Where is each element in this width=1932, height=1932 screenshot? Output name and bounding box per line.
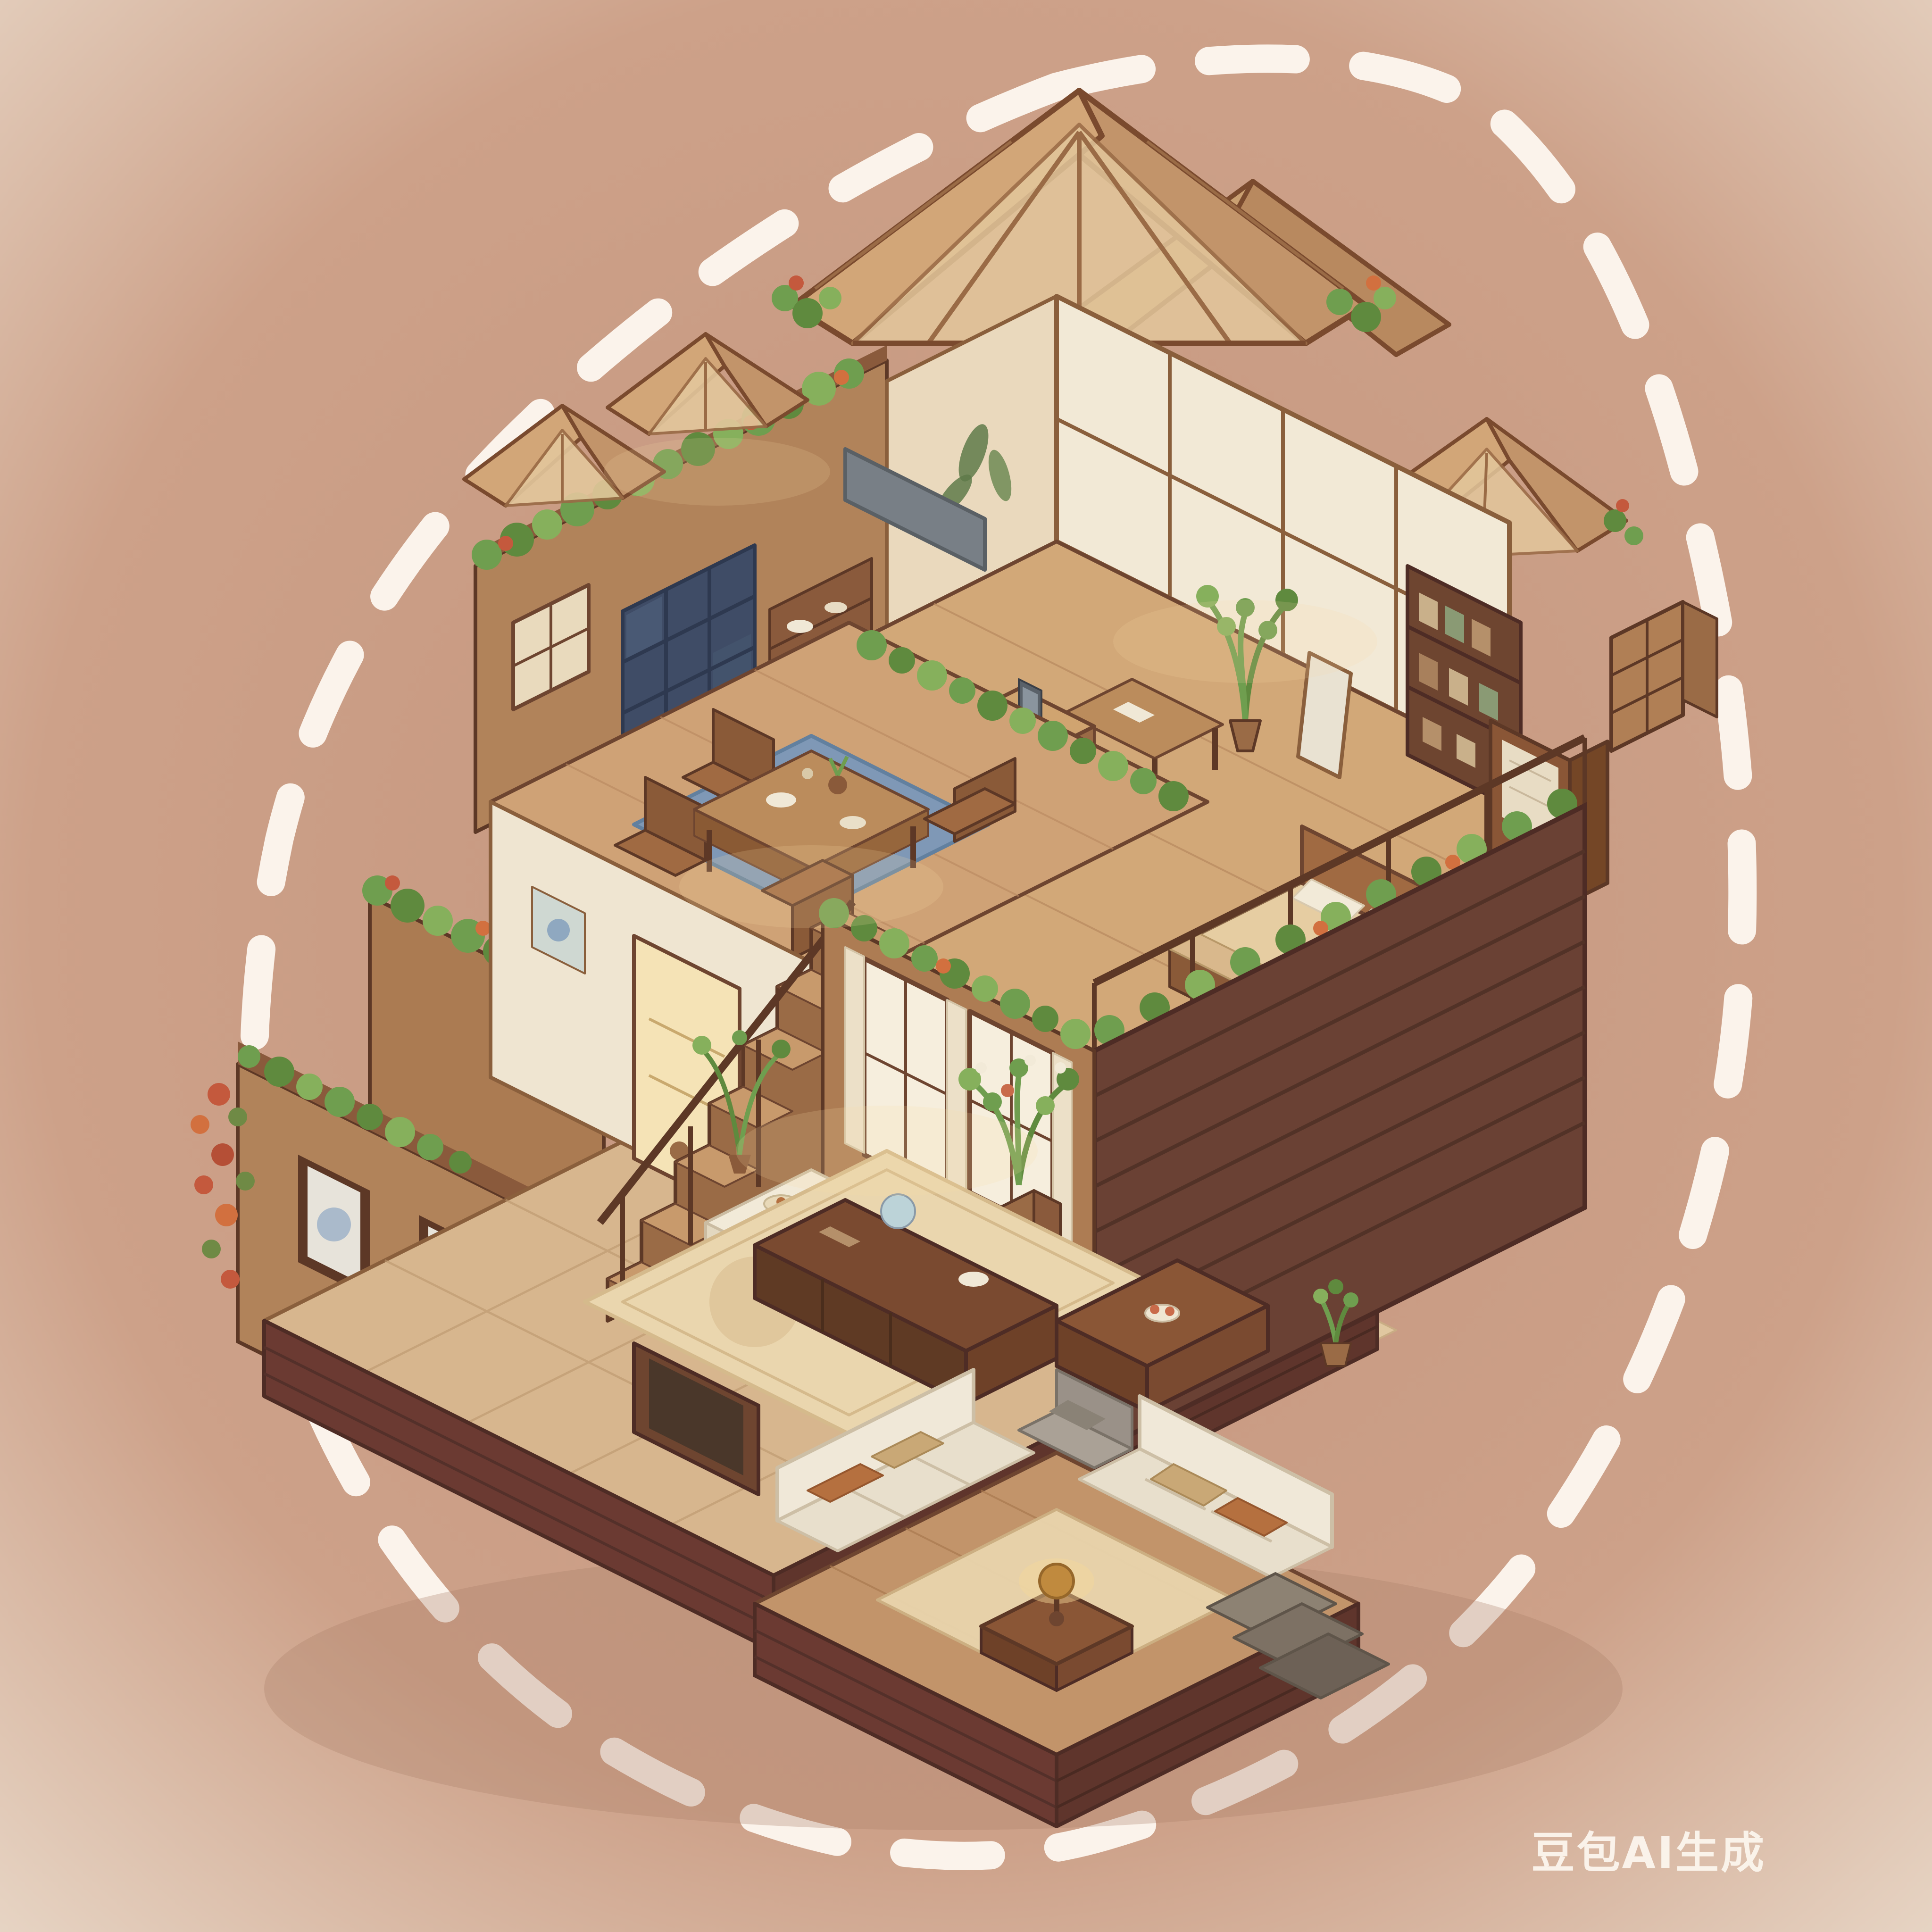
isometric-house-illustration: 豆包AI生成 bbox=[0, 0, 1932, 1932]
plate bbox=[840, 816, 866, 829]
bowl bbox=[958, 1272, 989, 1287]
gold-lamp bbox=[1040, 1564, 1074, 1598]
plate bbox=[766, 792, 796, 808]
vase bbox=[828, 775, 847, 794]
watermark: 豆包AI生成 bbox=[1532, 1828, 1766, 1878]
artwork-canvas: 豆包AI生成 bbox=[0, 0, 1932, 1932]
globe bbox=[881, 1194, 915, 1228]
